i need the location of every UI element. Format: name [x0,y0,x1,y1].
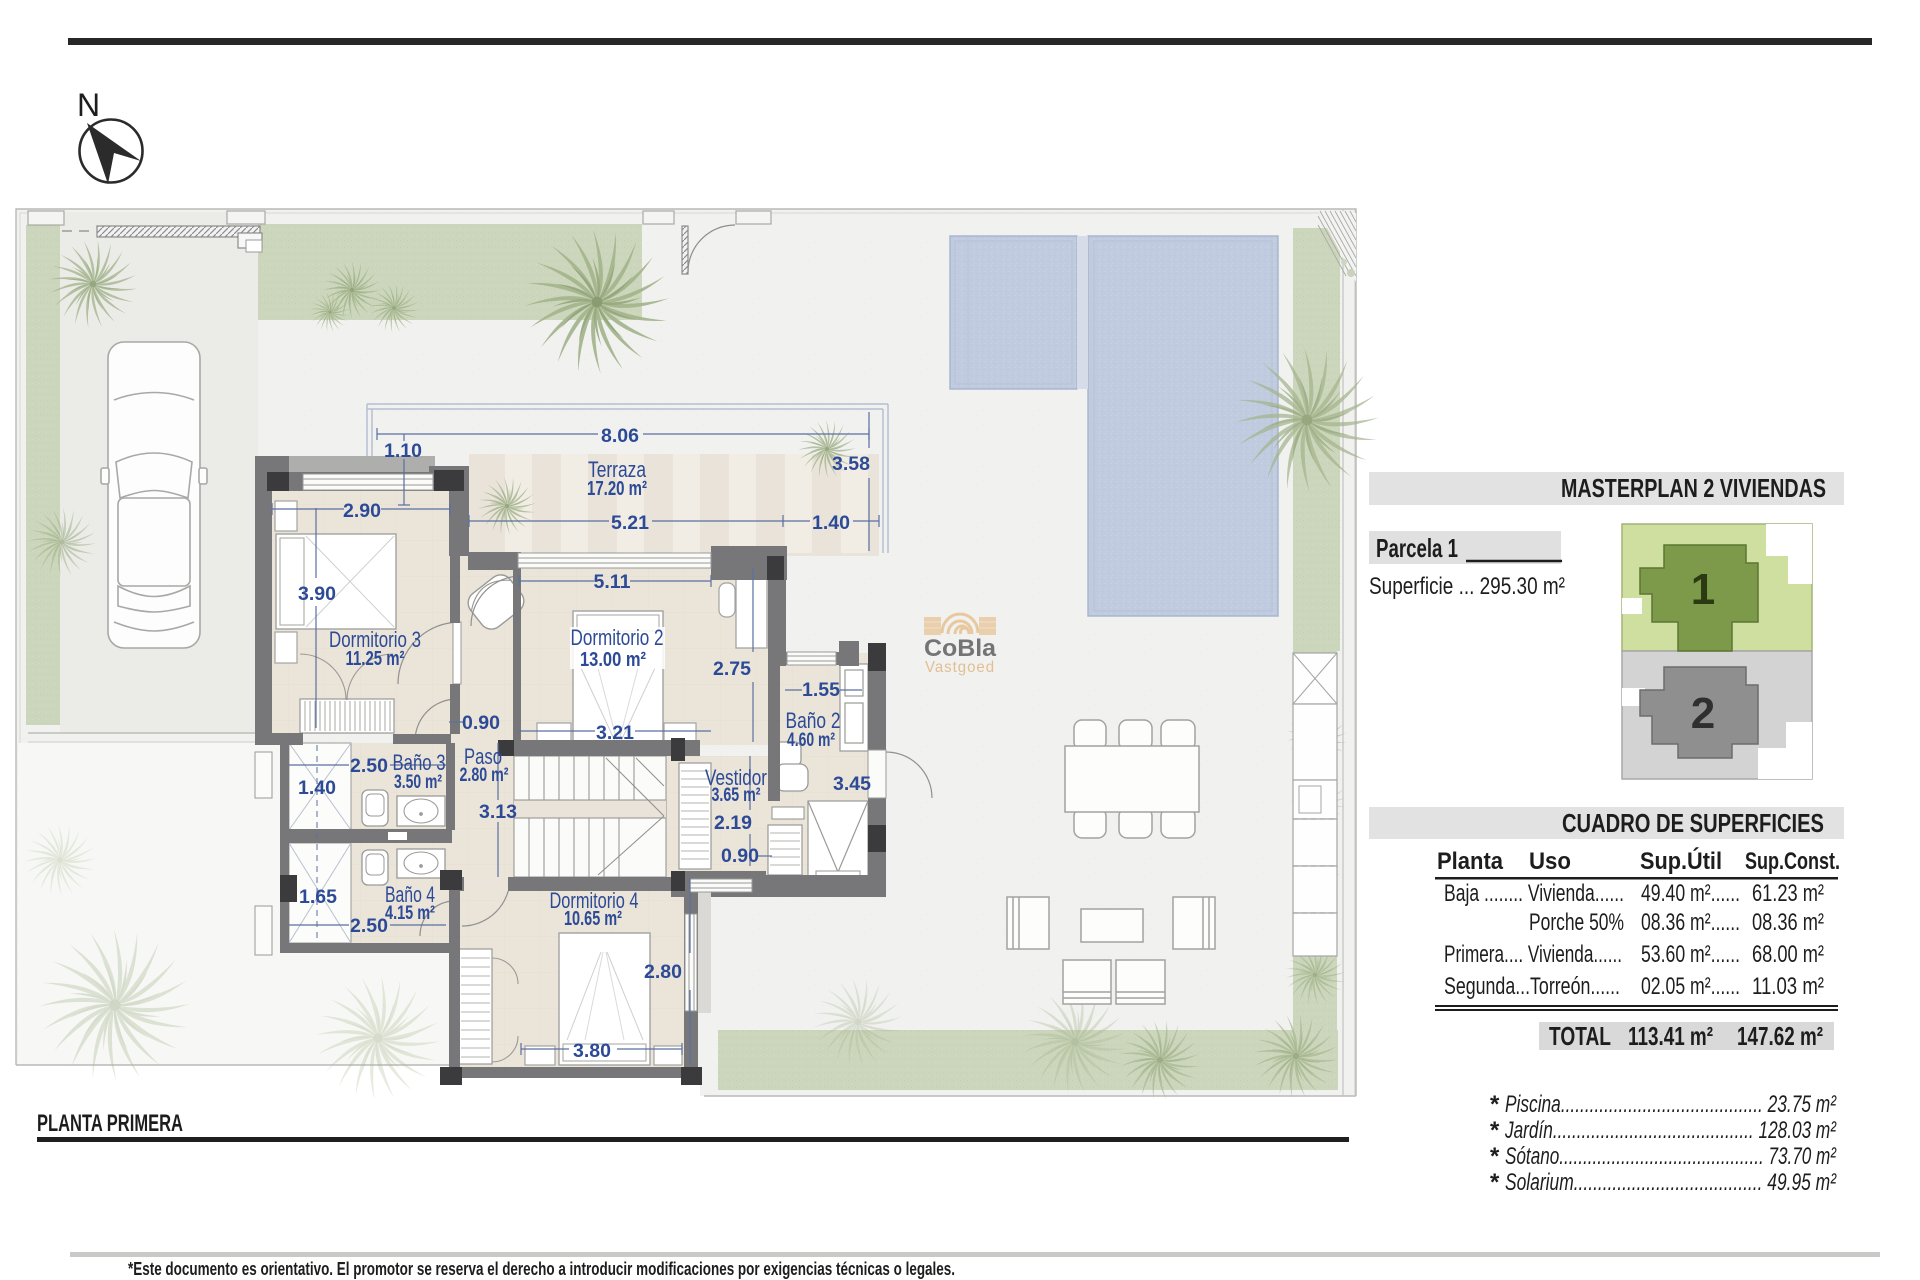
svg-text:3.65 m²: 3.65 m² [712,785,761,806]
svg-text:2.80: 2.80 [644,961,682,983]
svg-text:*Este documento es orientativo: *Este documento es orientativo. El promo… [128,1259,955,1279]
svg-text:CUADRO DE SUPERFICIES: CUADRO DE SUPERFICIES [1562,808,1824,838]
svg-text:3.13: 3.13 [479,801,517,823]
svg-text:13.00 m²: 13.00 m² [580,649,646,671]
svg-text:2.80 m²: 2.80 m² [460,765,509,786]
svg-text:TOTAL: TOTAL [1549,1021,1611,1051]
svg-text:08.36 m²......: 08.36 m²...... [1641,909,1740,936]
svg-text:3.80: 3.80 [573,1040,611,1062]
svg-text:8.06: 8.06 [601,425,639,447]
svg-text:113.41 m²: 113.41 m² [1628,1021,1713,1051]
svg-text:CoBla: CoBla [924,635,997,662]
svg-text:1.40: 1.40 [812,512,850,534]
svg-text:3.21: 3.21 [596,722,634,744]
svg-text:68.00 m²: 68.00 m² [1752,941,1824,968]
svg-text:Sup.Útil: Sup.Útil [1640,847,1722,875]
svg-text:4.15 m²: 4.15 m² [385,903,435,924]
svg-text:Sótano........................: Sótano..................................… [1505,1143,1837,1170]
svg-text:Uso: Uso [1529,848,1571,875]
svg-text:Solarium......................: Solarium................................… [1505,1169,1837,1196]
svg-text:1: 1 [1691,565,1715,614]
svg-text:1.40: 1.40 [298,777,336,799]
svg-text:2.19: 2.19 [714,812,752,834]
svg-text:5.21: 5.21 [611,512,649,534]
svg-text:4.60 m²: 4.60 m² [787,730,835,751]
svg-text:0.90: 0.90 [462,712,500,734]
svg-text:MASTERPLAN 2 VIVIENDAS: MASTERPLAN 2 VIVIENDAS [1561,473,1826,503]
svg-text:147.62 m²: 147.62 m² [1737,1021,1823,1051]
svg-text:2.90: 2.90 [343,500,381,522]
svg-text:Piscina.......................: Piscina.................................… [1505,1091,1837,1118]
svg-text:0.90: 0.90 [721,845,759,867]
svg-text:49.40 m²......: 49.40 m²...... [1641,880,1740,907]
svg-text:Segunda...Torreón......: Segunda...Torreón...... [1444,973,1620,1000]
svg-text:3.45: 3.45 [833,773,871,795]
svg-text:53.60 m²......: 53.60 m²...... [1641,941,1740,968]
svg-text:61.23 m²: 61.23 m² [1752,880,1824,907]
svg-text:3.58: 3.58 [832,453,870,475]
svg-text:2: 2 [1691,689,1715,738]
svg-text:Jardín........................: Jardín..................................… [1504,1117,1836,1144]
svg-text:1.55: 1.55 [802,679,840,701]
svg-text:2.75: 2.75 [713,658,751,680]
svg-text:Primera.... Vivienda......: Primera.... Vivienda...... [1444,941,1622,968]
svg-text:3.50 m²: 3.50 m² [394,772,442,793]
svg-text:1.10: 1.10 [384,440,422,462]
svg-text:10.65 m²: 10.65 m² [564,908,622,930]
svg-text:N: N [77,87,100,123]
svg-text:2.50: 2.50 [350,755,388,777]
svg-text:02.05 m²......: 02.05 m²...... [1641,973,1740,1000]
svg-text:Dormitorio 2: Dormitorio 2 [571,625,664,650]
svg-text:11.03 m²: 11.03 m² [1752,973,1824,1000]
svg-text:Vastgoed: Vastgoed [925,659,995,676]
svg-text:2.50: 2.50 [350,915,388,937]
svg-text:1.65: 1.65 [299,886,337,908]
svg-text:Sup.Const.: Sup.Const. [1745,848,1840,875]
svg-text:11.25 m²: 11.25 m² [346,648,405,670]
svg-text:Parcela 1: Parcela 1 [1376,533,1458,563]
svg-text:08.36 m²: 08.36 m² [1752,909,1824,936]
svg-text:5.11: 5.11 [594,571,631,593]
svg-text:Superficie ... 295.30 m²: Superficie ... 295.30 m² [1369,573,1565,600]
svg-text:Planta: Planta [1437,848,1504,875]
svg-text:Porche 50%: Porche 50% [1529,909,1624,936]
svg-text:PLANTA PRIMERA: PLANTA PRIMERA [37,1110,183,1137]
svg-text:3.90: 3.90 [298,583,336,605]
svg-text:17.20 m²: 17.20 m² [587,478,647,500]
svg-text:Baja ........ Vivienda......: Baja ........ Vivienda...... [1444,880,1624,907]
